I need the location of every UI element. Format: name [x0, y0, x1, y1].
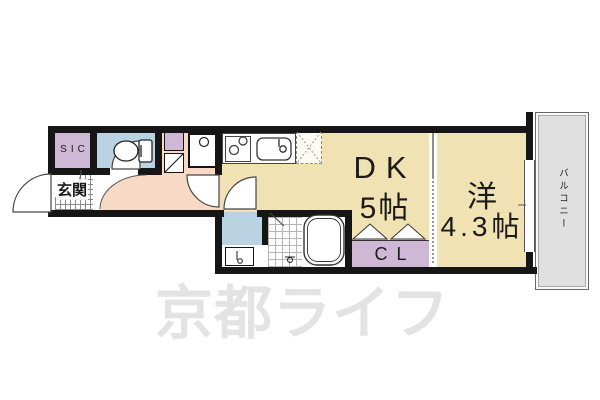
western-room-size: 4.3帖 — [427, 205, 537, 245]
entrance-door — [13, 174, 51, 212]
floor-plan: 京都ライフ — [0, 0, 600, 400]
closet-label: CL — [352, 244, 429, 265]
toilet-room-floor — [97, 133, 155, 168]
wall-bath-left — [215, 210, 222, 274]
stove — [225, 136, 251, 162]
wall-bottom-left-section — [48, 210, 222, 217]
wall-toilet-bottom-a — [97, 168, 110, 175]
wall-right-upper — [526, 133, 533, 162]
wall-left — [48, 126, 55, 174]
wall-bath-top-a — [215, 210, 224, 217]
wall-hall-dk — [215, 126, 222, 175]
pipe-space — [164, 131, 184, 151]
wall-toilet-bottom-b — [138, 168, 162, 175]
wall-sic-bottom — [48, 168, 97, 175]
shelf-box — [164, 153, 184, 173]
wall-bath-mid — [262, 217, 268, 245]
wall-bottom-right-section — [215, 267, 537, 274]
washbasin-room-floor — [222, 212, 262, 245]
washbasin-vanity — [225, 247, 254, 266]
wall-right-stub — [526, 112, 533, 133]
watermark-text: 京都ライフ — [155, 266, 450, 350]
shoe-closet-label: SIC — [55, 144, 90, 155]
entrance-label: 玄関 — [56, 179, 88, 200]
wall-top — [48, 126, 533, 133]
shower-area — [268, 217, 302, 267]
balcony-label: バルコニー — [555, 168, 569, 231]
